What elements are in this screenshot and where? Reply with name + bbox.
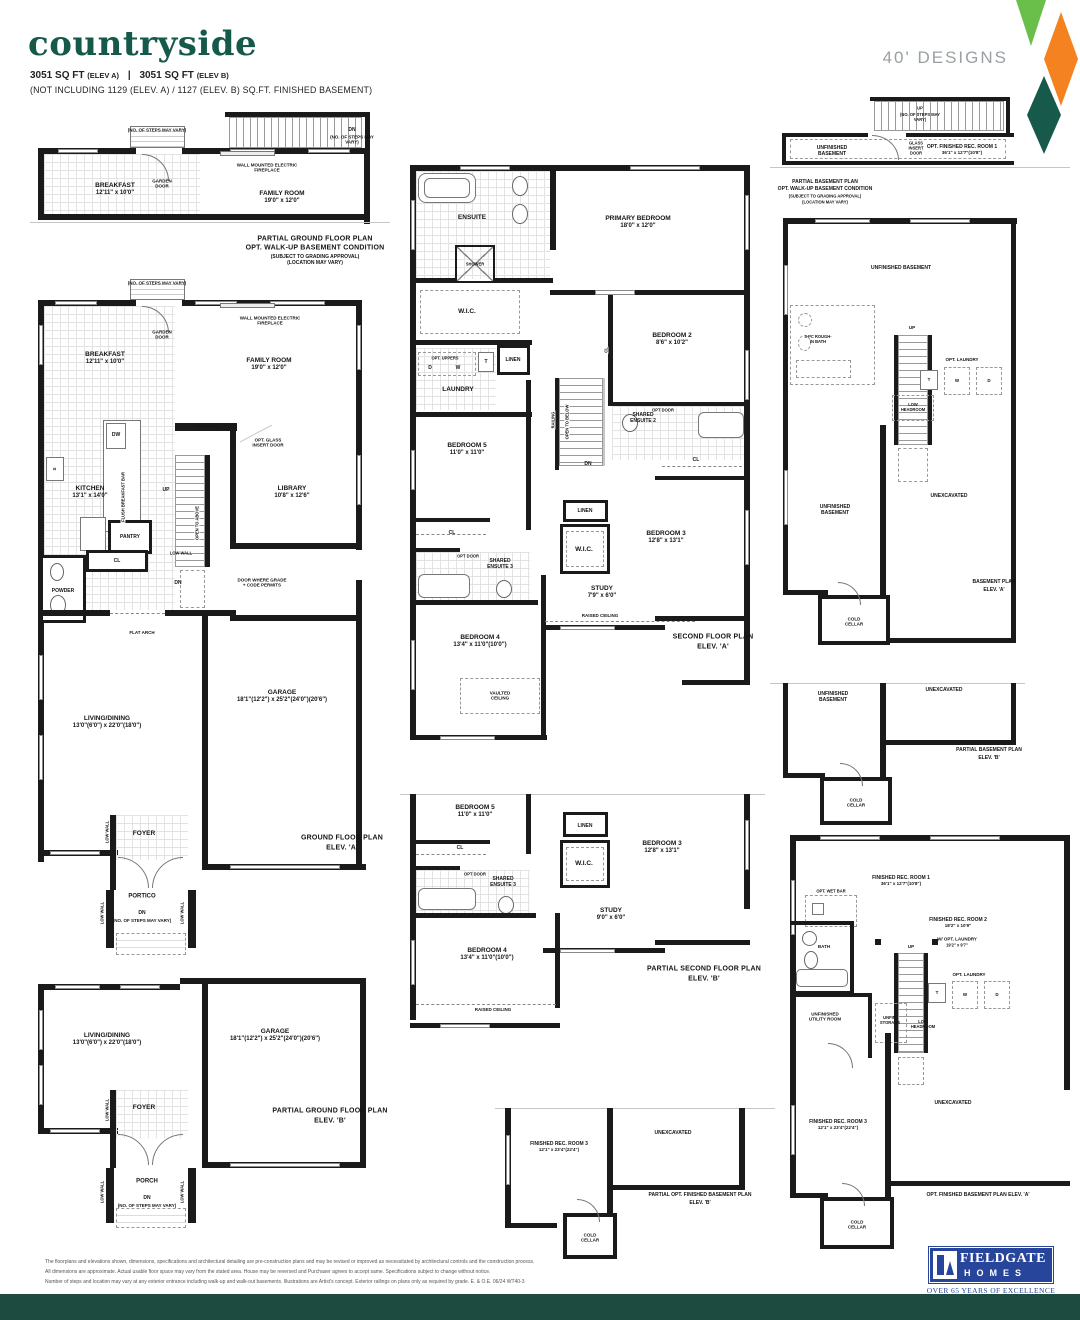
window-marker [50,851,100,855]
wall [364,148,370,224]
window-marker [440,736,495,740]
closet-rod [416,854,486,855]
wall [165,610,236,616]
room-label-unexcavated: UNEXCAVATED [931,493,968,499]
sink [802,931,817,946]
staircase-up [898,335,928,445]
window-marker [630,166,700,170]
label-opt-laundry-note: W/ OPT. LAUNDRY19'2" x 9'7" [937,937,977,948]
plan-caption: PARTIAL SECOND FLOOR PLAN [647,966,761,975]
room-name: BEDROOM 3 [642,840,681,848]
annotation: (NO. OF STEPS MAY VARY) [127,127,187,132]
room-label-bed2: BEDROOM 28'6" x 10'2" [652,332,691,348]
room-label-family: FAMILY ROOM19'0" x 12'0" [246,357,291,373]
room-label-unexcavated: UNEXCAVATED [935,1100,972,1106]
fieldgate-building-icon [933,1251,957,1279]
wall [410,913,536,918]
annotation: (NO. OF STEPS MAY VARY) [113,918,172,924]
bathtub [418,888,476,910]
room-label-unfinished: UNFINISHED BASEMENT [806,691,861,703]
plan-basement-a: UNFINISHED BASEMENT 4-PC ROUGH-IN BATH U… [770,210,1025,660]
label-dn: DN [584,461,591,467]
wall [526,794,531,854]
window-marker [411,640,415,690]
sink [50,563,64,581]
room-dims: 19'0" x 12'0" [259,198,304,206]
annotation-fireplace: WALL MOUNTED ELECTRIC FIREPLACE [232,163,302,174]
plan-caption: PARTIAL OPT. FINISHED BASEMENT PLAN [649,1192,752,1198]
label-closet: CL [449,530,456,536]
cut-line [495,1108,775,1109]
plan-partial-basement-b: UNFINISHED BASEMENT UNEXCAVATED COLD CEL… [770,655,1025,835]
label-low-wall: LOW WALL [194,424,219,430]
annotation-garden-door: GARDEN DOOR [145,179,179,190]
label-low-wall: LOW WALL [99,1180,104,1204]
ground-line [30,222,390,223]
room-name: LIVING/DINING [73,715,141,723]
wall [356,580,362,870]
window-marker [784,470,788,525]
bathtub [418,574,470,598]
plan-partial-ground-b: LIVING/DINING13'0"(6'0") x 22'0"(18'0") … [30,970,390,1250]
label-closet: CL [457,845,464,851]
room-label-utility: UNFINISHED UTILITY ROOM [804,1012,846,1023]
door-swing [152,1134,183,1165]
room-dims: 10'8" x 12'6" [274,493,309,501]
annotation-grade-door: DOOR WHERE GRADE + CODE PERMITS [237,578,287,589]
window-marker [58,149,98,153]
wall [410,600,538,605]
label-opt-laundry: OPT. LAUNDRY [945,357,978,363]
plan-caption: OPT. WALK-UP BASEMENT CONDITION [246,245,385,254]
label-open-below: OPEN TO BELOW [564,404,569,441]
wall [790,921,854,925]
label-linen: LINEN [506,357,521,363]
door-swing [842,1183,865,1206]
flat-arch-line [110,613,165,614]
room-label-portico: PORTICO [128,893,155,901]
room-dims: 18'2" x 10'9" [929,923,987,929]
wall [38,610,110,616]
room-dims: 18'0" x 12'0" [605,223,670,231]
room-label-foyer: FOYER [133,1104,155,1112]
sink [512,204,528,224]
room-dims: 11'0" x 11'0" [455,812,494,820]
window-marker [930,836,1000,840]
elev-b-label: (ELEV B) [197,71,229,80]
window-marker [357,455,361,505]
room-dims: 12'8" x 13'1" [646,538,685,546]
room-label-ensuite2: SHAREDENSUITE 2 [630,412,656,425]
bathtub [698,412,744,438]
elev-a-label: (ELEV A) [87,71,119,80]
room-label-ensuite3: SHAREDENSUITE 3 [487,558,513,571]
label-closet: CL [114,558,121,564]
plan-caption-note: (SUBJECT TO GRADING APPROVAL) [789,193,861,198]
window-marker [745,820,749,870]
low-wall [188,1168,196,1223]
window-marker [308,149,350,153]
room-name: BEDROOM 2 [652,332,691,340]
room-name: STUDY [588,585,617,593]
room-dims: 13'0"(6'0") x 22'0"(18'0") [73,723,141,731]
post [875,939,881,945]
room-dims: 13'4" x 11'0"(10'0") [460,955,513,963]
room-label-laundry: LAUNDRY [442,386,474,394]
disclaimer-line: All dimensions are approximate. Actual u… [45,1268,705,1278]
label-rough-in-bath: 4-PC ROUGH-IN BATH [803,335,833,345]
label-shower: SHOWER [466,261,484,266]
label-dn: DN [138,910,145,916]
label-dn: DN [143,1195,150,1201]
disclaimer-line: Number of steps and location may vary at… [45,1278,705,1288]
stair-dashed [898,1057,924,1085]
footer-bar [0,1294,1080,1320]
room-label-garage: GARAGE18'1"(12'2") x 25'2"(24'0")(20'6") [230,1028,320,1044]
room-dims: 18'1"(12'2") x 25'2"(24'0")(20'6") [230,1036,320,1044]
window-marker [784,265,788,315]
label-raised-ceiling: RAISED CEILING [582,613,619,619]
window-marker [745,510,749,565]
label-opt-door: OPT DOOR [457,553,479,558]
window-marker [745,195,749,250]
label-wet-bar: OPT. WET BAR [816,888,845,893]
room-dims: 7'9" x 6'0" [588,593,617,601]
window-marker [411,450,415,490]
plan-opt-finished-basement-a: FINISHED REC. ROOM 136'1" x 12'7"(10'8")… [780,825,1080,1275]
annotation-opt-glass: OPT. GLASS INSERT DOOR [246,438,290,449]
sink-dashed [798,313,812,327]
plan-caption: ELEV. 'A' [326,845,358,854]
window-marker [745,350,749,400]
plan-caption: OPT. FINISHED BASEMENT PLAN ELEV. 'A' [926,1192,1029,1198]
ground-line [770,167,1070,168]
sink [498,896,514,914]
room-label-rec1: FINISHED REC. ROOM 136'1" x 12'7"(10'8") [872,875,930,887]
wall [410,278,455,283]
room-label-living: LIVING/DINING13'0"(6'0") x 22'0"(18'0") [73,1032,141,1048]
label-sink: S [52,466,58,471]
window-marker [39,325,43,365]
room-label-wic2: W.I.C. [575,546,593,554]
room-dims: 13'1" x 14'0" [72,493,107,501]
plan-caption: PARTIAL BASEMENT PLAN [956,747,1022,753]
room-name: FAMILY ROOM [246,357,291,365]
room-label-family: FAMILY ROOM19'0" x 12'0" [259,190,304,206]
plan-caption: PARTIAL BASEMENT PLAN [792,179,858,185]
room-dims: 12'11" x 10'0" [95,190,135,198]
label-low-wall: LOW WALL [99,901,104,925]
label-closet: CL [693,457,700,463]
plan-caption: ELEV. 'B' [978,755,999,761]
room-label-bed4: BEDROOM 413'4" x 11'0"(10'0") [453,634,506,650]
wall [555,913,560,1008]
low-wall [106,1168,114,1223]
label-low-wall: LOW WALL [179,901,184,925]
room-label-ensuite: ENSUITE [458,214,486,222]
room-dims: 12'1" x 23'4"(22'4") [809,1125,867,1131]
wall [783,683,788,778]
window-marker [39,1065,43,1105]
label-dryer: D [995,992,998,998]
room-label-primary: PRIMARY BEDROOM18'0" x 12'0" [605,215,670,231]
wall [410,840,490,844]
garage-door [230,1163,340,1167]
plan-partial-second-b: BEDROOM 511'0" x 11'0" CL OPT DOOR SHARE… [400,790,765,1040]
annotation: (NO. OF STEPS MAY VARY) [900,113,940,123]
sqft-b: 3051 SQ FT [139,70,193,81]
wall [880,740,1016,745]
room-label-bath: BATH [818,944,830,950]
window-marker [120,985,160,989]
separator: | [122,70,137,81]
annotation-flat-arch: FLAT ARCH [129,630,154,636]
wall [526,380,531,530]
wall [410,518,490,522]
toilet [804,951,818,969]
plan-caption: ELEV. 'A' [983,587,1004,593]
annotation: (NO. OF STEPS MAY VARY) [118,1203,177,1209]
label-opt-laundry: OPT. LAUNDRY [952,972,985,978]
label-dryer: D [987,378,990,384]
stair-dashed [898,448,928,482]
room-label-unfinished: UNFINISHED BASEMENT [871,265,931,271]
door-opening [595,290,635,295]
room-dims: 11'0" x 11'0" [447,450,486,458]
plan-caption: SECOND FLOOR PLAN [673,634,754,643]
fieldgate-brand-name: FIELDGATE [960,1251,1046,1267]
label-opt-door: OPT DOOR [464,871,486,876]
label-tub: T [484,359,487,365]
wall [608,295,613,405]
label-tub: T [928,377,931,383]
room-dims: 19'2" x 9'7" [937,942,977,947]
room-dims: 12'11" x 10'0" [85,359,125,367]
plan-caption: PARTIAL GROUND FLOOR PLAN [272,1108,387,1117]
wall [783,773,825,778]
annotation: (NO. OF STEPS MAY VARY) [127,280,187,285]
window-marker [39,1010,43,1050]
raised-ceiling-line [416,1004,556,1005]
room-label-garage: GARAGE18'1"(12'2") x 25'2"(24'0")(20'6") [237,689,327,705]
window-marker [506,1135,510,1185]
tub-dashed [796,360,851,378]
window-marker [55,985,100,989]
wall [410,412,532,417]
fieldgate-logo-panel: FIELDGATE HOMES [930,1248,1052,1282]
window-marker [440,1024,490,1028]
wall [928,335,932,445]
room-label-bed3: BEDROOM 312'8" x 13'1" [646,530,685,546]
door-swing [118,857,149,888]
door-swing [838,582,861,605]
label-flush-bar: FLUSH BREAKFAST BAR [120,471,125,523]
room-label-study: STUDY9'0" x 6'0" [597,907,626,923]
label-dw: DW [112,432,120,438]
window-marker [357,325,361,370]
wall [655,476,750,480]
wall [360,978,366,1168]
label-dryer: D [428,365,432,371]
label-dn: DN [174,580,181,586]
railing [603,378,605,466]
fieldgate-homes-label: HOMES [964,1268,1027,1278]
window-marker [560,626,615,630]
sink [496,580,512,598]
room-name: ENSUITE 2 [630,418,656,424]
room-label-unexcavated: UNEXCAVATED [655,1130,692,1136]
room-name: W/ OPT. LAUNDRY [937,937,977,943]
label-up: UP [909,325,915,331]
plan-caption-note: (LOCATION MAY VARY) [802,199,848,204]
wall [202,978,208,1168]
wall [230,543,362,549]
room-dims: 12'8" x 13'1" [642,848,681,856]
room-label-breakfast: BREAKFAST12'11" x 10'0" [85,351,125,367]
bathtub-inner [424,178,470,198]
wall [38,214,370,220]
sqft-a: 3051 SQ FT [30,70,84,81]
room-label-study: STUDY7'9" x 6'0" [588,585,617,601]
annotation-garden-door: GARDEN DOOR [145,330,179,341]
tile-floor-foyer [116,1090,188,1138]
annotation-glass-door: GLASS INSERT DOOR [904,142,928,157]
fridge [80,517,106,551]
label-up: UP [163,487,170,493]
fireplace-marker [220,303,275,308]
window-marker [791,1105,795,1155]
floorplan-sheet: countryside 3051 SQ FT (ELEV A) | 3051 S… [0,0,1080,1320]
door-swing [840,763,863,786]
window-marker [460,166,510,170]
door-swing [118,1134,149,1165]
room-label-bed5: BEDROOM 511'0" x 11'0" [455,804,494,820]
label-low-wall: LOW WALL [104,820,109,844]
room-name: ENSUITE 3 [487,564,513,570]
window-marker [270,301,325,305]
room-label-cold-cellar: COLD CELLAR [574,1233,606,1244]
sqft-line: 3051 SQ FT (ELEV A) | 3051 SQ FT (ELEV B… [30,70,229,81]
door-swing [152,857,183,888]
wall [607,1185,745,1190]
plan-caption: ELEV. 'A' [697,644,729,653]
wall [550,290,750,295]
room-label-wic: W.I.C. [458,308,476,316]
wall [230,615,362,621]
window-marker [815,219,870,223]
label-low-wall: LOW WALL [179,1180,184,1204]
room-label-ensuite3: SHAREDENSUITE 3 [490,876,516,889]
room-label-bed4: BEDROOM 413'4" x 11'0"(10'0") [460,947,513,963]
plan-caption: ELEV. 'B' [689,1200,710,1206]
wall [868,993,872,1058]
fireplace-marker [220,151,275,156]
wall [230,423,236,549]
wall [739,1108,745,1190]
label-up: UP [908,944,914,950]
label-low-wall: LOW WALL [104,1098,109,1122]
room-name: STUDY [597,907,626,915]
room-name: BEDROOM 4 [460,947,513,955]
room-name: GARAGE [230,1028,320,1036]
room-name: BEDROOM 3 [646,530,685,538]
cut-line [400,794,765,795]
annotation-dn: DN [348,127,355,133]
cut-line [770,683,1025,684]
label-up: UP [917,105,923,110]
annotation-fireplace: WALL MOUNTED ELECTRIC FIREPLACE [235,316,305,327]
wall [885,1181,1070,1186]
wall [782,161,1014,165]
annotation: (NO. OF STEPS MAY VARY) [324,135,380,146]
room-label-cold-cellar: COLD CELLAR [840,798,872,809]
door-swing [828,1043,853,1068]
plan-partial-ground-walkup: (NO. OF STEPS MAY VARY) GARDEN DOOR DN (… [30,110,390,275]
wall [1006,97,1010,137]
low-wall [188,890,196,948]
window-marker [791,880,795,935]
label-linen: LINEN [578,508,593,514]
window-marker [39,655,43,700]
room-label-cold-cellar: COLD CELLAR [838,617,870,628]
wall [790,993,872,997]
raised-ceiling-line [545,621,695,622]
wall [655,940,750,945]
label-low-headroom: LOW HEADROOM [898,403,928,413]
entry-steps [116,933,186,955]
label-closet: CL [603,346,608,353]
plan-caption: ELEV. 'B' [688,976,720,985]
fieldgate-logo: FIELDGATE HOMES [928,1246,1054,1284]
room-dims: 13'0"(6'0") x 22'0"(18'0") [73,1040,141,1048]
disclaimer-text: The floorplans and elevations shown, dim… [45,1258,705,1287]
plan-second-floor-a: ENSUITE SHOWER PRIMARY BEDROOM18'0" x 12… [400,150,765,750]
wall [682,680,750,685]
label-low-wall: LOW WALL [170,550,192,555]
disclaimer-line: The floorplans and elevations shown, dim… [45,1258,705,1268]
wall [505,1223,557,1228]
wall [1064,835,1070,1090]
label-linen: LINEN [578,823,593,829]
label-raised-ceiling: RAISED CEILING [475,1007,512,1013]
plan-caption: PARTIAL GROUND FLOOR PLAN [257,236,372,245]
label-vaulted-ceiling: VAULTED CEILING [483,691,517,702]
room-label-unfinished: UNFINISHED BASEMENT [808,504,863,516]
window-marker [820,836,880,840]
room-name: BREAKFAST [95,182,135,190]
label-opt-uppers: OPT. UPPERS [431,355,458,360]
window-marker [560,949,615,953]
page-title: countryside [28,24,257,64]
room-label-library: LIBRARY10'8" x 12'6" [274,485,309,501]
window-marker [411,940,415,985]
room-dims: 8'6" x 10'2" [652,340,691,348]
closet-rod [662,466,742,467]
label-washer: W [963,992,967,998]
room-name: BREAKFAST [85,351,125,359]
room-name: BEDROOM 5 [447,442,486,450]
room-label-rec3: FINISHED REC. ROOM 312'1" x 23'4"(22'4") [530,1141,588,1153]
wall [541,575,546,738]
plan-ground-floor-a: (NO. OF STEPS MAY VARY) GARDEN DOOR WALL… [30,265,375,970]
plan-caption: OPT. WALK-UP BASEMENT CONDITION [778,186,873,192]
room-label-kitchen: KITCHEN13'1" x 14'0" [72,485,107,501]
room-name: ENSUITE 3 [490,882,516,888]
designs-label: 40' DESIGNS [858,48,1008,68]
plan-partial-basement-walkup: UP (NO. OF STEPS MAY VARY) UNFINISHED BA… [770,95,1070,220]
window-marker [910,219,970,223]
label-open-above: OPEN TO ABOVE [194,505,199,541]
